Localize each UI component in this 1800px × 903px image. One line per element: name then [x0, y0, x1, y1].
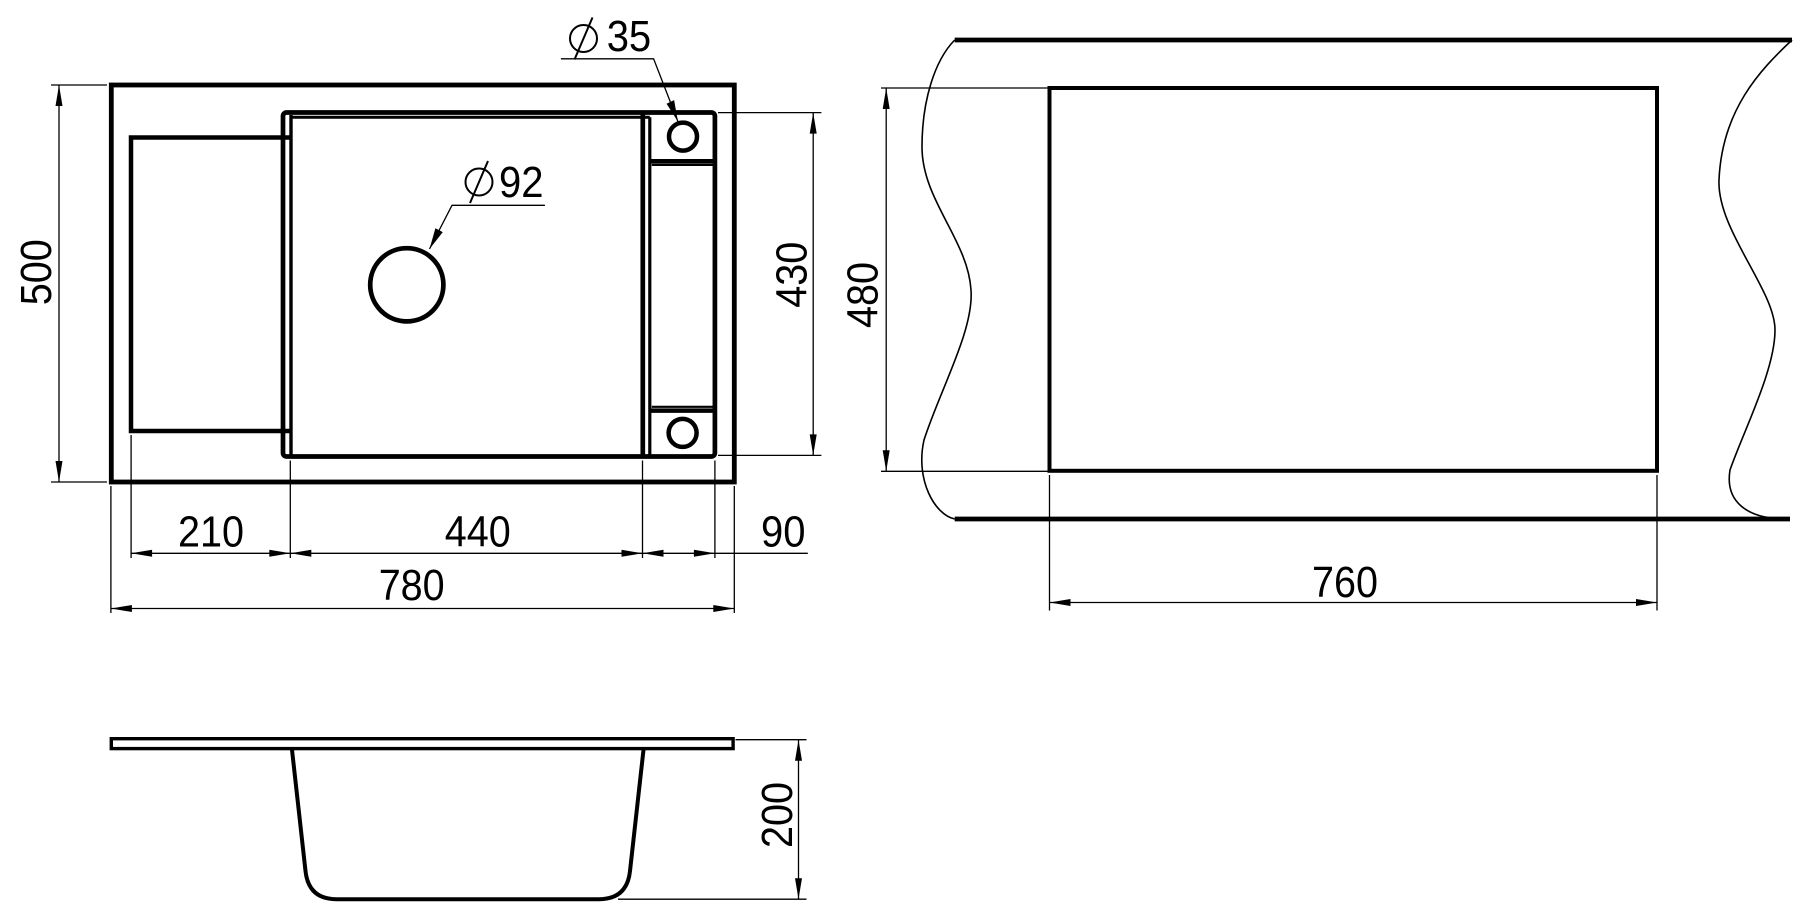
svg-text:90: 90 [761, 508, 806, 557]
svg-text:92: 92 [499, 158, 544, 207]
svg-text:200: 200 [753, 782, 802, 848]
svg-text:210: 210 [178, 508, 244, 557]
svg-text:430: 430 [767, 242, 816, 308]
svg-text:480: 480 [839, 262, 888, 328]
svg-text:780: 780 [379, 561, 445, 610]
svg-text:500: 500 [12, 239, 61, 305]
svg-text:760: 760 [1312, 558, 1378, 607]
svg-text:35: 35 [607, 12, 652, 61]
svg-text:440: 440 [445, 508, 511, 557]
